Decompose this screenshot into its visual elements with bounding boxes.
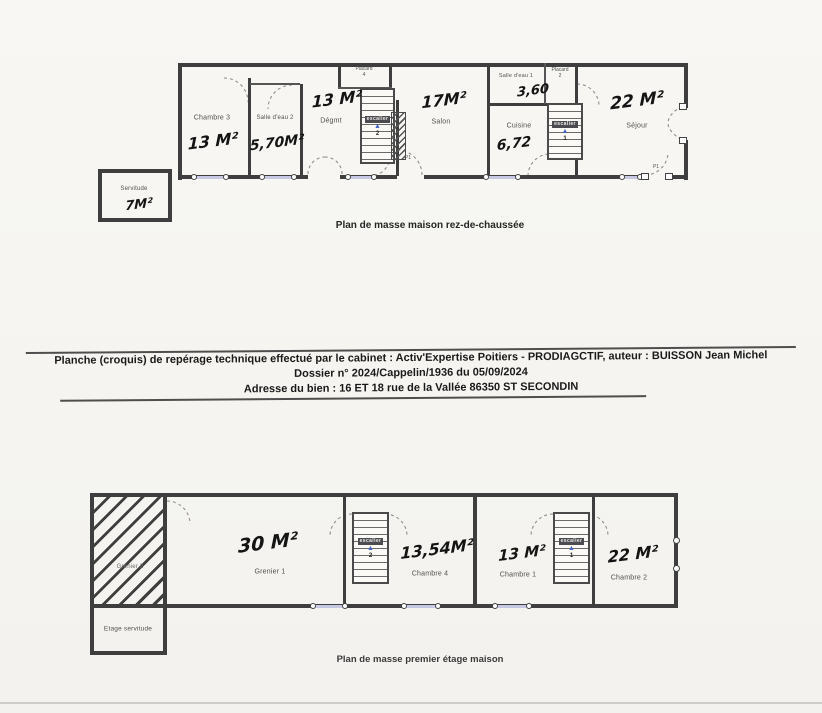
room-label: Chambre 2 xyxy=(611,575,647,582)
room-label: Servitude xyxy=(120,186,147,192)
stair-closet-hatch xyxy=(391,112,406,160)
closet-number: 4 xyxy=(363,72,366,78)
door-jamb xyxy=(679,103,687,110)
room-label: Chambre 3 xyxy=(194,115,230,122)
grenier2-hatch xyxy=(94,497,163,604)
wall xyxy=(487,63,490,176)
window xyxy=(196,176,224,179)
stair-number: 1 xyxy=(570,553,573,559)
wall xyxy=(343,493,346,608)
door-jamb xyxy=(641,173,649,180)
door-arc xyxy=(268,85,292,109)
door-arc xyxy=(224,78,248,102)
window xyxy=(497,605,527,608)
wall xyxy=(90,651,167,655)
closet-label: Placard 2 xyxy=(552,67,569,79)
door-arc xyxy=(325,157,342,174)
door-arc xyxy=(330,514,352,536)
stair-label: escalier xyxy=(358,538,384,545)
wall xyxy=(168,169,172,222)
scan-edge-shadow xyxy=(0,702,822,704)
staircase-1: escalier ▲ 1 xyxy=(547,103,583,160)
up-arrow-icon: ▲ xyxy=(374,124,381,130)
wall xyxy=(338,63,341,89)
window-marker xyxy=(673,565,680,572)
wall xyxy=(90,604,678,608)
wall xyxy=(163,608,167,655)
room-label: Cuisine xyxy=(507,123,532,130)
room-area: 17M² xyxy=(421,88,466,113)
room-area: 7M² xyxy=(125,196,153,215)
window xyxy=(264,176,292,179)
window-marker xyxy=(673,537,680,544)
wall xyxy=(300,84,303,176)
staircase-2: escalier ▲ 2 xyxy=(360,88,395,164)
up-arrow-icon: ▲ xyxy=(568,546,575,552)
wall xyxy=(163,493,167,608)
wall xyxy=(90,493,678,497)
door-arc xyxy=(668,106,682,140)
door-jamb xyxy=(679,137,687,144)
wall xyxy=(178,63,688,67)
room-area: 13 M² xyxy=(188,128,239,153)
wall xyxy=(684,63,688,108)
wall xyxy=(98,218,172,222)
plan-caption: Plan de masse maison rez-de-chaussée xyxy=(336,220,524,231)
stair-label: escalier xyxy=(365,116,391,123)
room-area: 6,72 xyxy=(497,134,532,154)
stair-number: 2 xyxy=(369,553,372,559)
window xyxy=(624,176,638,179)
wall xyxy=(424,175,645,179)
stair-number: 1 xyxy=(563,136,566,142)
door-arc xyxy=(531,514,553,536)
wall xyxy=(592,493,595,608)
wall xyxy=(674,493,678,608)
report-header: Planche (croquis) de repérage technique … xyxy=(26,346,796,402)
room-area: 22 M² xyxy=(608,541,659,566)
room-area: 30 M² xyxy=(238,528,298,558)
room-label: Chambre 4 xyxy=(412,571,448,578)
up-arrow-icon: ▲ xyxy=(367,546,374,552)
window xyxy=(315,605,343,608)
wall xyxy=(250,83,300,85)
stair-number: 2 xyxy=(376,131,379,137)
scanned-floorplan-sheet: escalier ▲ 2 escalier ▲ 1 Chambre 3 13 M… xyxy=(0,0,822,713)
plan-caption: Plan de masse premier étage maison xyxy=(337,654,504,665)
stair-label: escalier xyxy=(552,121,578,128)
room-area: 13 M² xyxy=(312,86,363,111)
room-label: Dégmt xyxy=(320,118,342,125)
room-label: Grenier 2 xyxy=(117,564,144,570)
room-area: 13,54M² xyxy=(400,535,473,563)
closet-label: Placard 4 xyxy=(356,66,373,78)
stair-label: escalier xyxy=(559,538,585,545)
room-label: Chambre 1 xyxy=(500,572,536,579)
wall xyxy=(487,103,552,106)
window xyxy=(406,605,436,608)
room-label: Salon xyxy=(432,119,451,126)
window xyxy=(350,176,372,179)
staircase-1: escalier ▲ 1 xyxy=(553,512,590,584)
door-arc xyxy=(308,157,325,174)
room-label: Salle d'eau 1 xyxy=(499,73,533,79)
wall xyxy=(98,169,102,222)
door-arc xyxy=(167,501,190,524)
room-label: Etage servitude xyxy=(104,626,152,633)
room-label: Grenier 1 xyxy=(255,569,286,576)
room-area: 13 M² xyxy=(498,541,546,565)
window xyxy=(488,176,516,179)
wall xyxy=(389,63,392,89)
door-ref: P1 xyxy=(653,164,659,170)
wall xyxy=(178,63,182,180)
door-jamb xyxy=(665,173,673,180)
room-label: Séjour xyxy=(626,123,647,130)
room-label: Salle d'eau 2 xyxy=(256,115,293,121)
room-area: 22 M² xyxy=(610,88,664,115)
wall xyxy=(90,608,94,655)
room-area: 5,70M² xyxy=(250,132,304,155)
up-arrow-icon: ▲ xyxy=(562,129,569,135)
closet-number: 2 xyxy=(559,73,562,79)
wall xyxy=(473,493,477,608)
staircase-2: escalier ▲ 2 xyxy=(352,512,389,584)
wall xyxy=(684,140,688,180)
wall xyxy=(98,169,172,173)
wall xyxy=(248,78,251,176)
door-ref: P1 xyxy=(405,155,411,161)
